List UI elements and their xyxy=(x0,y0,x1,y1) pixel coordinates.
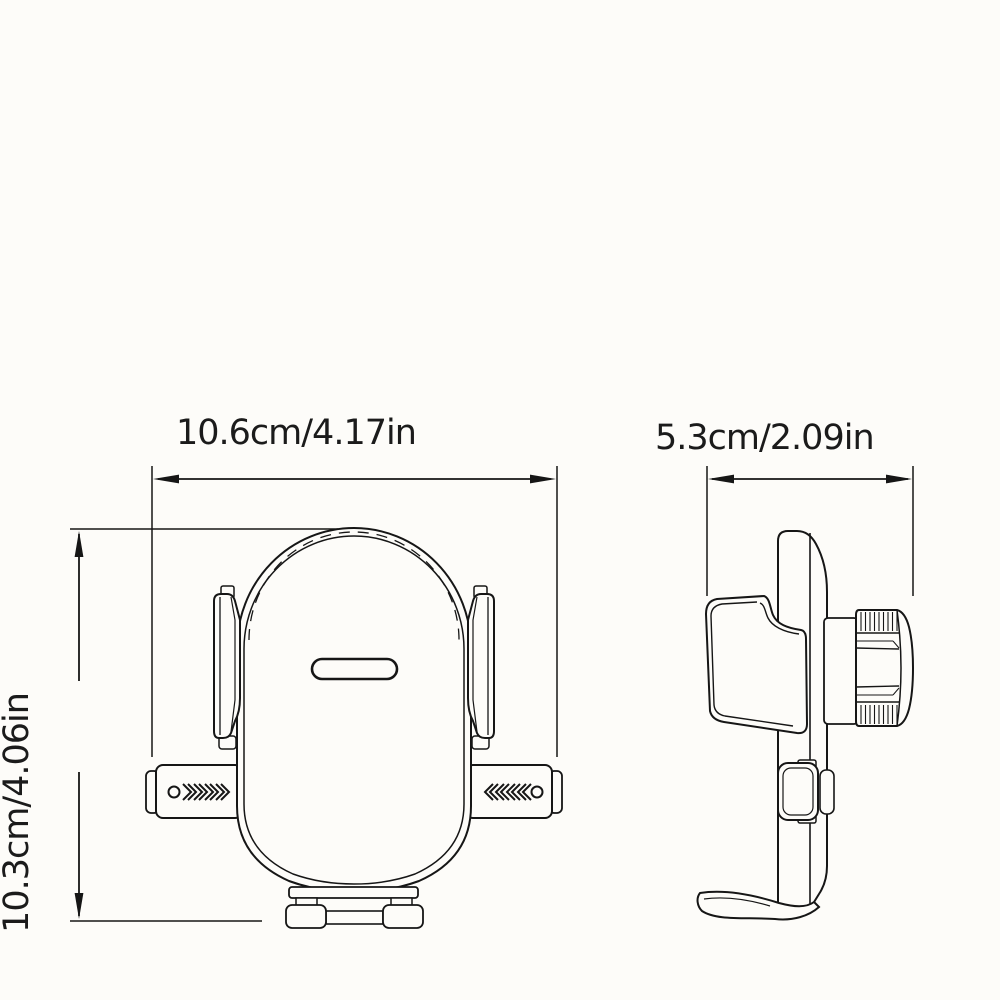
arrowhead-up-icon xyxy=(75,531,84,557)
arrowhead-right-icon xyxy=(886,475,912,484)
dimension-diagram-svg xyxy=(0,0,1000,1000)
right-vent-arm xyxy=(466,765,562,818)
release-button xyxy=(778,760,834,823)
arrowhead-left-icon xyxy=(708,475,734,484)
pad-outline xyxy=(214,594,240,738)
knob-connector xyxy=(824,618,858,724)
arrowhead-right-icon xyxy=(530,475,556,484)
holder-body-outline xyxy=(237,528,471,892)
arrowhead-down-icon xyxy=(75,893,84,919)
knurled-knob xyxy=(856,610,913,726)
foot-middle-band xyxy=(326,911,383,924)
pad-outline xyxy=(468,594,494,738)
button-back-bulge xyxy=(820,770,834,814)
side-view-drawing xyxy=(698,531,913,919)
bottom-foot-assembly xyxy=(286,887,423,928)
arm-body xyxy=(466,765,552,818)
foot-bar xyxy=(289,887,418,898)
front-view-drawing xyxy=(146,528,562,928)
diagram-canvas: 10.6cm/4.17in 5.3cm/2.09in 10.3cm/4.06in xyxy=(0,0,1000,1000)
foot-base-right xyxy=(383,905,423,928)
left-vent-arm xyxy=(146,765,242,818)
knob-outline xyxy=(856,610,913,726)
arrowhead-left-icon xyxy=(153,475,179,484)
foot-base-left xyxy=(286,905,326,928)
